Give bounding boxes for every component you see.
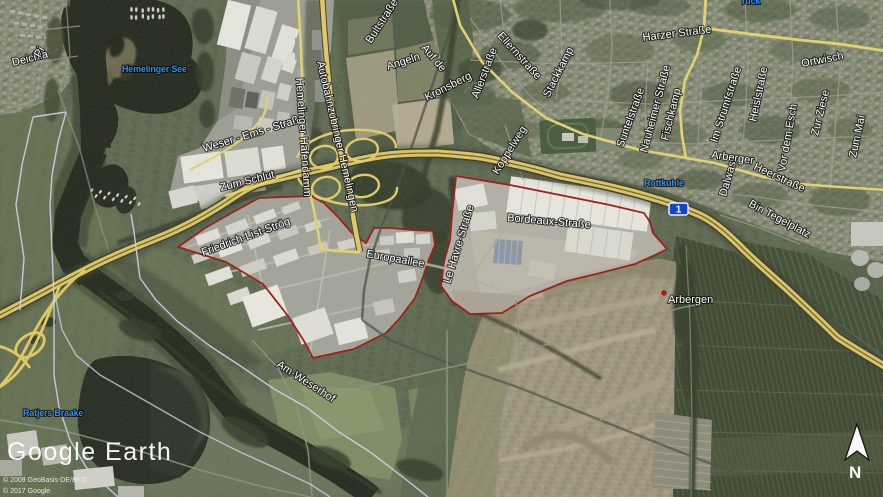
svg-text:Hemelinger See: Hemelinger See	[122, 64, 187, 74]
svg-text:Google Earth: Google Earth	[7, 438, 172, 466]
svg-text:© 2017 Google: © 2017 Google	[3, 487, 50, 495]
svg-text:rück: rück	[742, 0, 761, 6]
svg-text:N: N	[849, 463, 861, 482]
svg-text:© 2009 GeoBasis-DE/BKG: © 2009 GeoBasis-DE/BKG	[3, 476, 87, 484]
svg-text:1: 1	[676, 205, 682, 216]
svg-text:Arbergen: Arbergen	[668, 294, 713, 306]
svg-text:Ratjers Braake: Ratjers Braake	[23, 408, 83, 418]
svg-text:Rottkuhle: Rottkuhle	[644, 178, 684, 188]
